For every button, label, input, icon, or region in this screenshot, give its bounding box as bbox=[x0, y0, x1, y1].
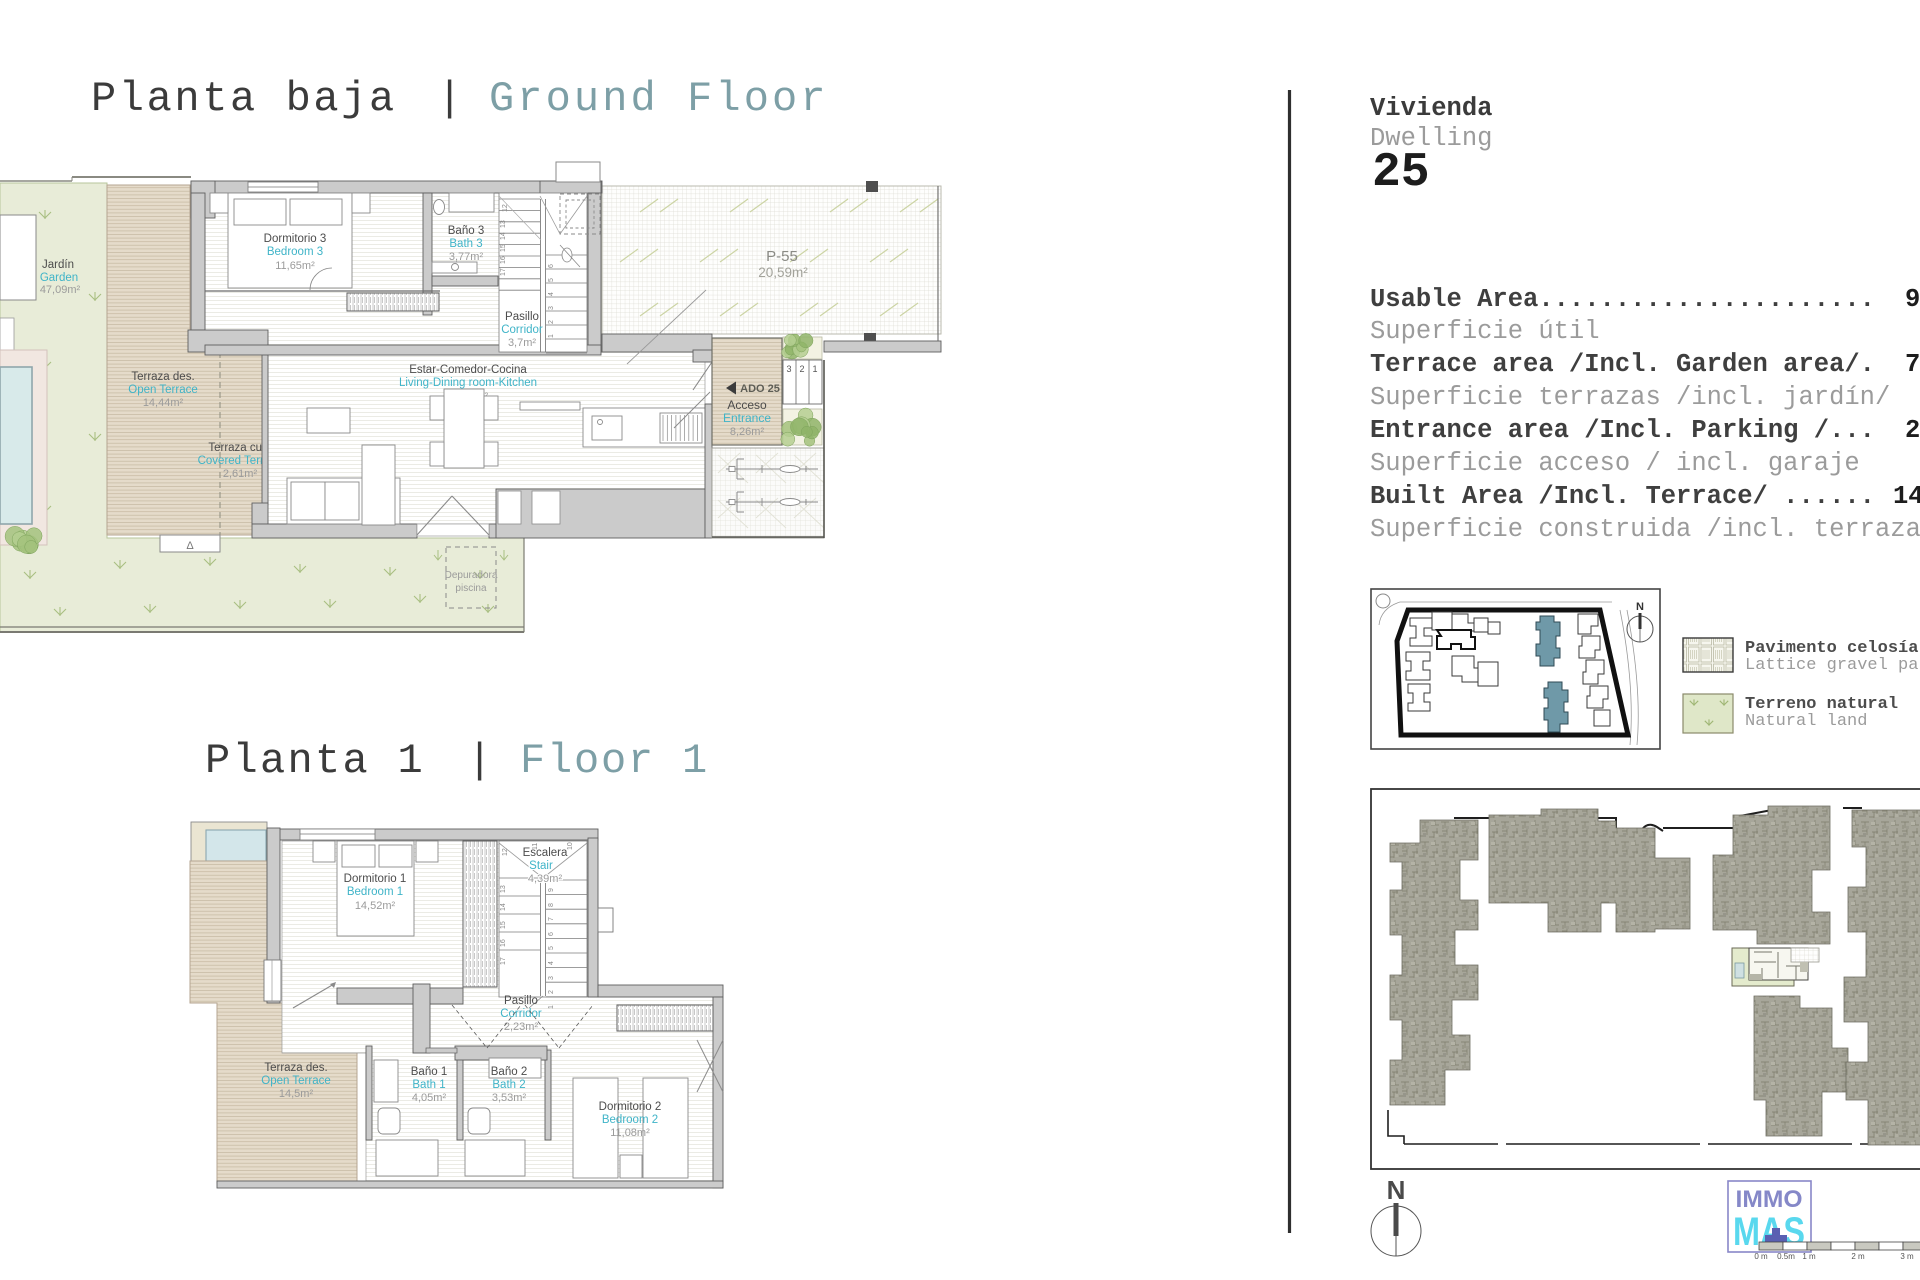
svg-text:Depuradora: Depuradora bbox=[445, 570, 498, 581]
svg-text:P-55: P-55 bbox=[766, 248, 798, 265]
svg-text:1: 1 bbox=[548, 1005, 555, 1009]
svg-text:Terrace area /Incl. Garden are: Terrace area /Incl. Garden area/. bbox=[1370, 350, 1875, 379]
svg-text:14,5m²: 14,5m² bbox=[279, 1088, 314, 1100]
svg-text:Open Terrace: Open Terrace bbox=[261, 1075, 330, 1087]
svg-text:14,44m²: 14,44m² bbox=[143, 397, 184, 409]
svg-text:3: 3 bbox=[786, 364, 791, 374]
svg-text:10: 10 bbox=[567, 842, 574, 850]
svg-text:14: 14 bbox=[500, 232, 507, 240]
svg-text:17: 17 bbox=[500, 957, 507, 965]
svg-text:15: 15 bbox=[500, 244, 507, 252]
svg-text:Bath 1: Bath 1 bbox=[412, 1079, 445, 1091]
svg-text:Planta 1: Planta 1 bbox=[205, 737, 425, 785]
svg-text:2: 2 bbox=[548, 320, 555, 324]
svg-text:14,52m²: 14,52m² bbox=[355, 900, 396, 912]
svg-text:Terraza des.: Terraza des. bbox=[131, 371, 194, 383]
svg-text:Bedroom 1: Bedroom 1 bbox=[347, 886, 403, 898]
svg-text:3,53m²: 3,53m² bbox=[492, 1092, 527, 1104]
svg-text:Baño 3: Baño 3 bbox=[448, 225, 484, 237]
svg-text:Bedroom 3: Bedroom 3 bbox=[267, 246, 323, 258]
svg-text:Living-Dining room-Kitchen: Living-Dining room-Kitchen bbox=[399, 377, 537, 389]
svg-text:Open Terrace: Open Terrace bbox=[128, 384, 197, 396]
svg-text:Stair: Stair bbox=[529, 860, 553, 872]
svg-text:Usable Area...................: Usable Area...................... bbox=[1370, 285, 1875, 314]
svg-text:Garden: Garden bbox=[40, 272, 78, 284]
svg-text:4,39m²: 4,39m² bbox=[528, 873, 563, 885]
svg-text:3: 3 bbox=[548, 976, 555, 980]
svg-text:Jardín: Jardín bbox=[42, 259, 74, 271]
svg-text:Estar-Comedor-Cocina: Estar-Comedor-Cocina bbox=[409, 364, 527, 376]
svg-text:Acceso: Acceso bbox=[727, 398, 767, 412]
svg-text:Dormitorio 3: Dormitorio 3 bbox=[264, 233, 327, 245]
svg-text:3,7m²: 3,7m² bbox=[508, 337, 536, 349]
svg-text:7: 7 bbox=[1905, 350, 1920, 379]
svg-text:Dormitorio 2: Dormitorio 2 bbox=[599, 1101, 662, 1113]
svg-text:2,61m²: 2,61m² bbox=[223, 468, 258, 480]
svg-text:4: 4 bbox=[548, 961, 555, 965]
svg-text:Natural land: Natural land bbox=[1745, 712, 1867, 731]
svg-text:12: 12 bbox=[502, 848, 509, 856]
svg-text:0.5m: 0.5m bbox=[1777, 1252, 1795, 1261]
svg-text:Pasillo: Pasillo bbox=[505, 311, 539, 323]
svg-text:Baño 2: Baño 2 bbox=[491, 1066, 527, 1078]
svg-text:25: 25 bbox=[1372, 146, 1430, 200]
svg-text:1: 1 bbox=[812, 364, 817, 374]
svg-text:7: 7 bbox=[548, 917, 555, 921]
svg-text:6: 6 bbox=[548, 264, 555, 268]
svg-text:Escalera: Escalera bbox=[523, 847, 568, 859]
svg-text:13: 13 bbox=[500, 885, 507, 893]
svg-text:Dormitorio 1: Dormitorio 1 bbox=[344, 873, 407, 885]
svg-text:Entrance: Entrance bbox=[723, 411, 771, 425]
svg-text:IMMO: IMMO bbox=[1736, 1186, 1803, 1213]
svg-text:5: 5 bbox=[548, 946, 555, 950]
svg-text:|: | bbox=[437, 75, 462, 123]
svg-text:2,23m²: 2,23m² bbox=[504, 1021, 539, 1033]
svg-text:Superficie útil: Superficie útil bbox=[1370, 317, 1600, 346]
svg-text:11,08m²: 11,08m² bbox=[610, 1127, 650, 1139]
svg-text:Superficie terrazas /incl. jar: Superficie terrazas /incl. jardín/ bbox=[1370, 383, 1890, 412]
svg-text:3 m: 3 m bbox=[1900, 1252, 1914, 1261]
svg-text:12: 12 bbox=[502, 204, 509, 212]
svg-text:14: 14 bbox=[1893, 482, 1920, 511]
svg-text:3: 3 bbox=[548, 306, 555, 310]
svg-text:6: 6 bbox=[548, 932, 555, 936]
svg-text:Floor 1: Floor 1 bbox=[520, 737, 709, 785]
svg-text:Bath 3: Bath 3 bbox=[449, 238, 482, 250]
svg-text:8,26m²: 8,26m² bbox=[730, 426, 765, 438]
svg-text:8: 8 bbox=[548, 903, 555, 907]
svg-text:2: 2 bbox=[799, 364, 804, 374]
svg-text:14: 14 bbox=[500, 903, 507, 911]
svg-text:Built Area /Incl. Terrace/ ...: Built Area /Incl. Terrace/ ...... bbox=[1370, 482, 1875, 511]
svg-text:Bath 2: Bath 2 bbox=[492, 1079, 525, 1091]
svg-text:Entrance area /Incl. Parking /: Entrance area /Incl. Parking /... bbox=[1370, 416, 1875, 445]
svg-text:Ground Floor: Ground Floor bbox=[489, 75, 829, 123]
svg-text:2 m: 2 m bbox=[1851, 1252, 1865, 1261]
svg-text:ADO 25: ADO 25 bbox=[740, 383, 780, 395]
svg-text:16: 16 bbox=[500, 256, 507, 264]
svg-text:N: N bbox=[1387, 1175, 1406, 1205]
svg-text:Vivienda: Vivienda bbox=[1370, 94, 1492, 123]
svg-text:4: 4 bbox=[548, 292, 555, 296]
svg-text:47,09m²: 47,09m² bbox=[40, 284, 81, 296]
svg-text:0 m: 0 m bbox=[1754, 1252, 1768, 1261]
svg-text:Bedroom 2: Bedroom 2 bbox=[602, 1114, 658, 1126]
svg-text:Terraza des.: Terraza des. bbox=[264, 1062, 327, 1074]
svg-text:2: 2 bbox=[548, 990, 555, 994]
svg-text:20,59m²: 20,59m² bbox=[758, 265, 808, 280]
svg-text:1 m: 1 m bbox=[1802, 1252, 1816, 1261]
svg-text:17: 17 bbox=[500, 268, 507, 276]
svg-text:Lattice gravel pa: Lattice gravel pa bbox=[1745, 656, 1918, 675]
svg-text:Baño 1: Baño 1 bbox=[411, 1066, 447, 1078]
svg-text:1: 1 bbox=[548, 334, 555, 338]
svg-text:3,77m²: 3,77m² bbox=[449, 251, 484, 263]
svg-text:Superficie construida /incl. t: Superficie construida /incl. terraza bbox=[1370, 515, 1920, 544]
svg-text:Planta baja: Planta baja bbox=[91, 75, 397, 123]
svg-text:15: 15 bbox=[500, 921, 507, 929]
svg-text:13: 13 bbox=[500, 220, 507, 228]
svg-text:Corridor: Corridor bbox=[501, 324, 543, 336]
svg-text:N: N bbox=[1636, 601, 1644, 613]
svg-text:|: | bbox=[467, 737, 492, 785]
svg-text:9: 9 bbox=[548, 888, 555, 892]
svg-text:2: 2 bbox=[1905, 416, 1920, 445]
svg-text:4,05m²: 4,05m² bbox=[412, 1092, 447, 1104]
svg-text:5: 5 bbox=[548, 278, 555, 282]
svg-text:piscina: piscina bbox=[455, 583, 487, 594]
svg-text:16: 16 bbox=[500, 939, 507, 947]
svg-text:Δ: Δ bbox=[186, 540, 194, 552]
svg-text:11,65m²: 11,65m² bbox=[275, 260, 315, 272]
svg-text:9: 9 bbox=[1905, 285, 1920, 314]
svg-text:Pasillo: Pasillo bbox=[504, 995, 538, 1007]
svg-text:Superficie acceso / incl. gara: Superficie acceso / incl. garaje bbox=[1370, 449, 1860, 478]
